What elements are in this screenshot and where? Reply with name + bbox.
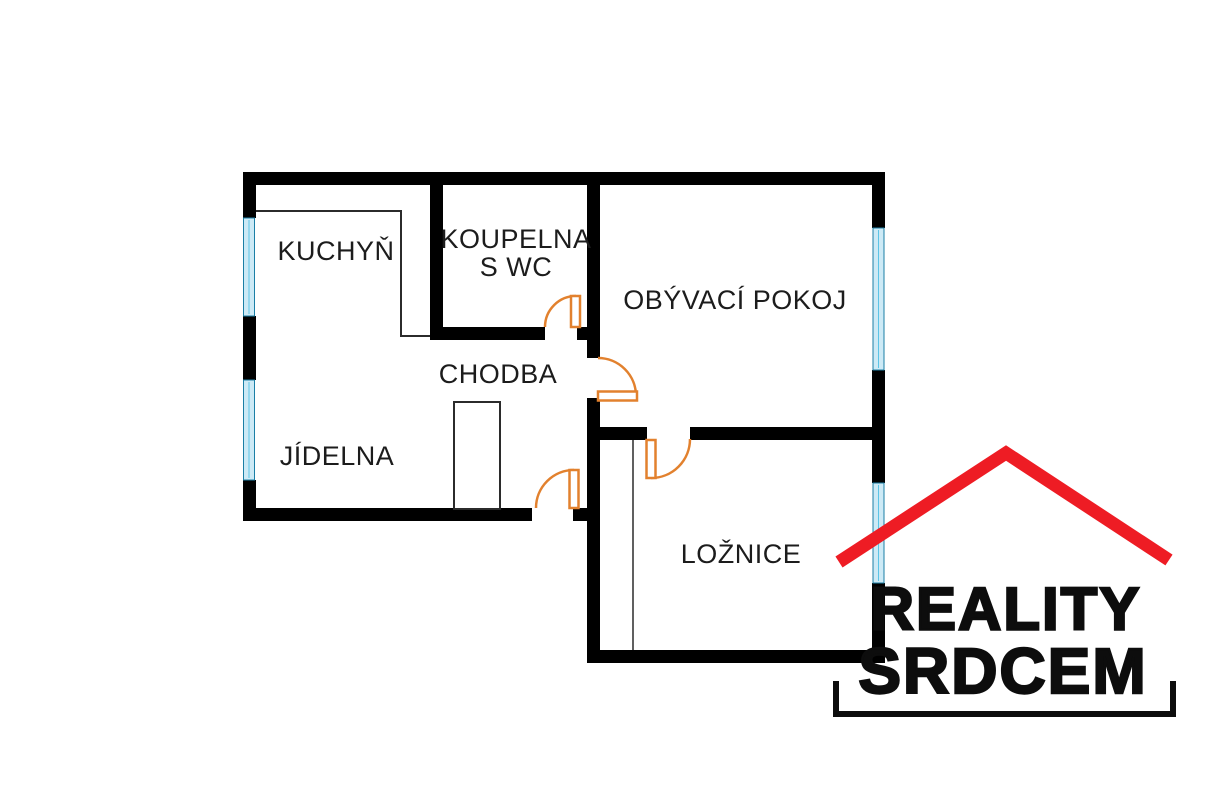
door-koupelna-icon bbox=[545, 296, 580, 327]
door-loznice-arc bbox=[651, 439, 690, 478]
wall-obyvaci-loznice-right bbox=[690, 427, 885, 440]
logo-text-srdcem: SRDCEM bbox=[858, 634, 1147, 708]
room-label-obyvaci-pokoj: OBÝVACÍ POKOJ bbox=[623, 286, 847, 314]
room-label-koupelna-line1: KOUPELNA bbox=[440, 225, 591, 253]
door-entrance-icon bbox=[536, 470, 579, 508]
door-loznice-icon bbox=[647, 439, 691, 478]
logo-roof-icon bbox=[839, 453, 1169, 562]
room-label-koupelna-line2: S WC bbox=[440, 253, 591, 281]
wall-right-middle bbox=[872, 370, 885, 483]
room-label-jidelna: JÍDELNA bbox=[280, 442, 395, 470]
wall-obyvaci-loznice-left bbox=[598, 427, 647, 440]
room-label-kuchyn: KUCHYŇ bbox=[277, 237, 394, 265]
doors bbox=[536, 296, 690, 508]
chodba-closet bbox=[454, 402, 500, 509]
wall-koupelna-bottom bbox=[430, 327, 545, 340]
wall-loznice-bottom bbox=[587, 650, 885, 663]
door-loznice-leaf bbox=[647, 440, 656, 478]
door-obyvaci-leaf bbox=[598, 392, 637, 401]
wall-left-middle bbox=[243, 316, 256, 380]
wall-right-upper bbox=[872, 172, 885, 228]
wall-top bbox=[243, 172, 885, 185]
room-label-koupelna: KOUPELNA S WC bbox=[440, 225, 591, 281]
door-entrance-leaf bbox=[570, 470, 579, 508]
room-label-loznice: LOŽNICE bbox=[681, 540, 802, 568]
door-koupelna-leaf bbox=[571, 296, 580, 327]
door-obyvaci-icon bbox=[598, 358, 637, 401]
room-label-chodba: CHODBA bbox=[439, 360, 558, 388]
floor-plan-canvas: KUCHYŇ KOUPELNA S WC OBÝVACÍ POKOJ CHODB… bbox=[0, 0, 1207, 810]
kuchyn-counter-line bbox=[256, 211, 430, 336]
wall-left-upper bbox=[243, 172, 256, 218]
